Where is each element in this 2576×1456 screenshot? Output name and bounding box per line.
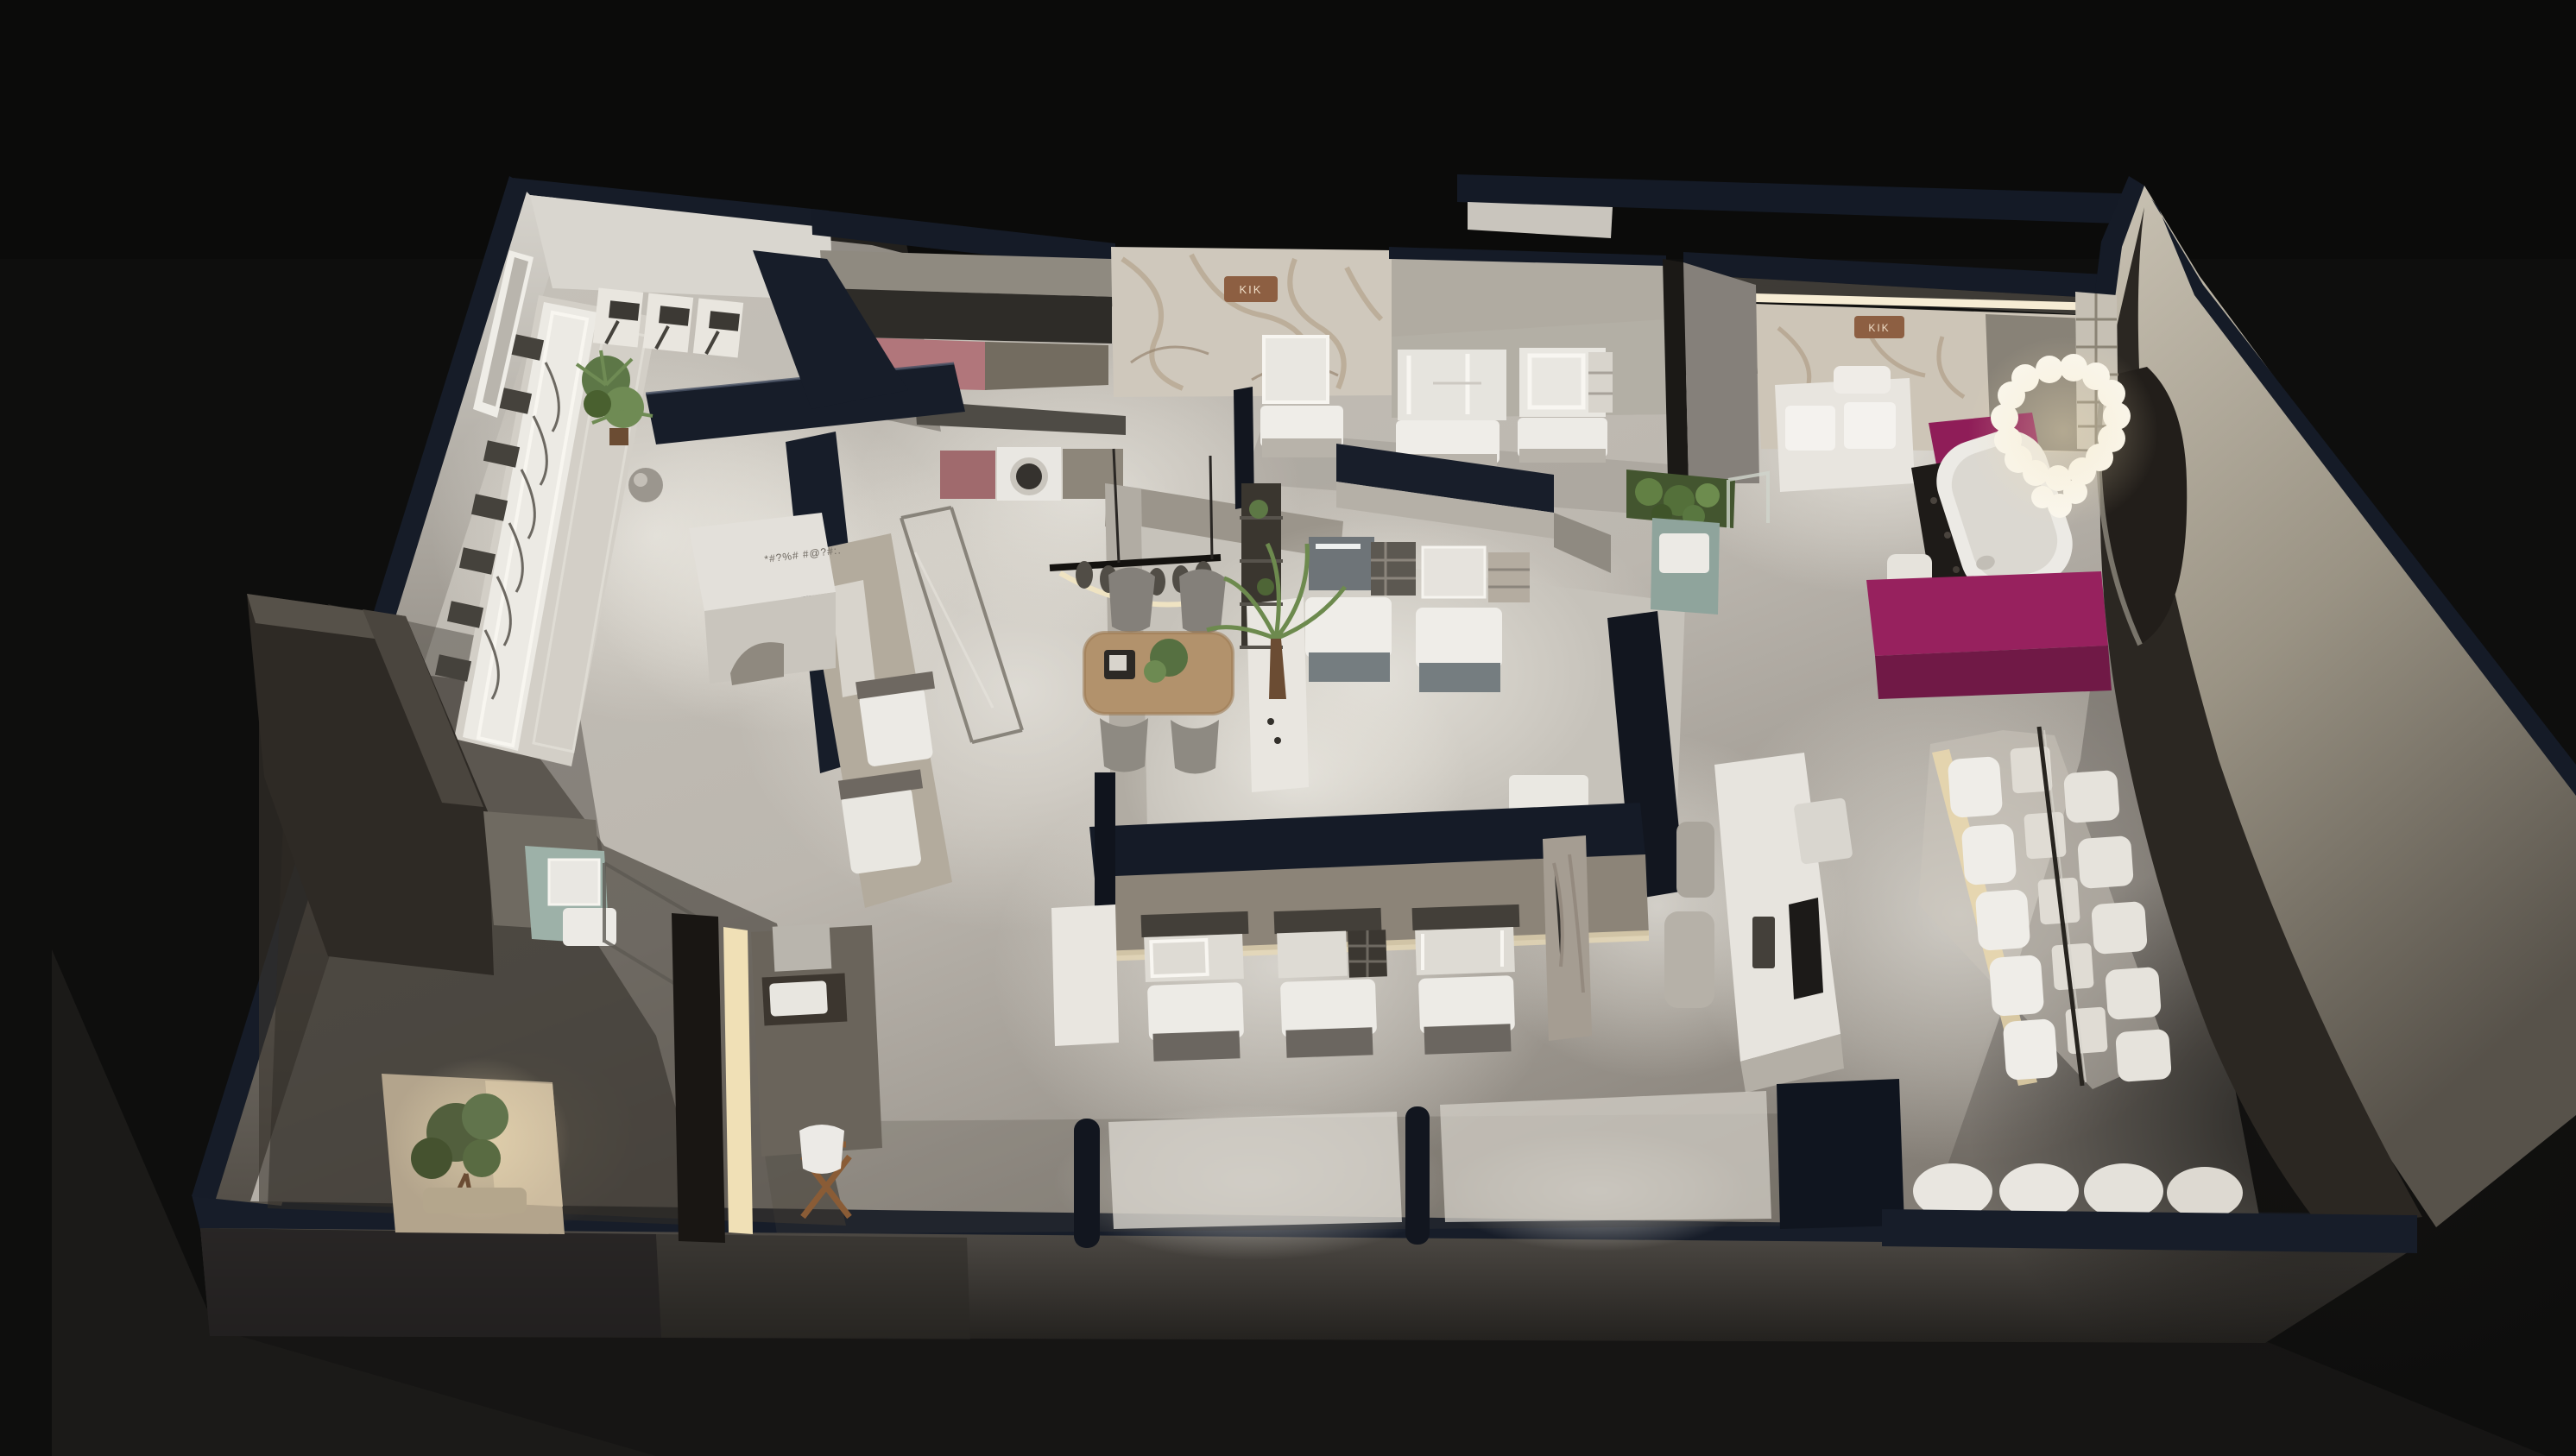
svg-text:KIK: KIK [1240,283,1263,296]
svg-text:KIK: KIK [1868,322,1890,334]
